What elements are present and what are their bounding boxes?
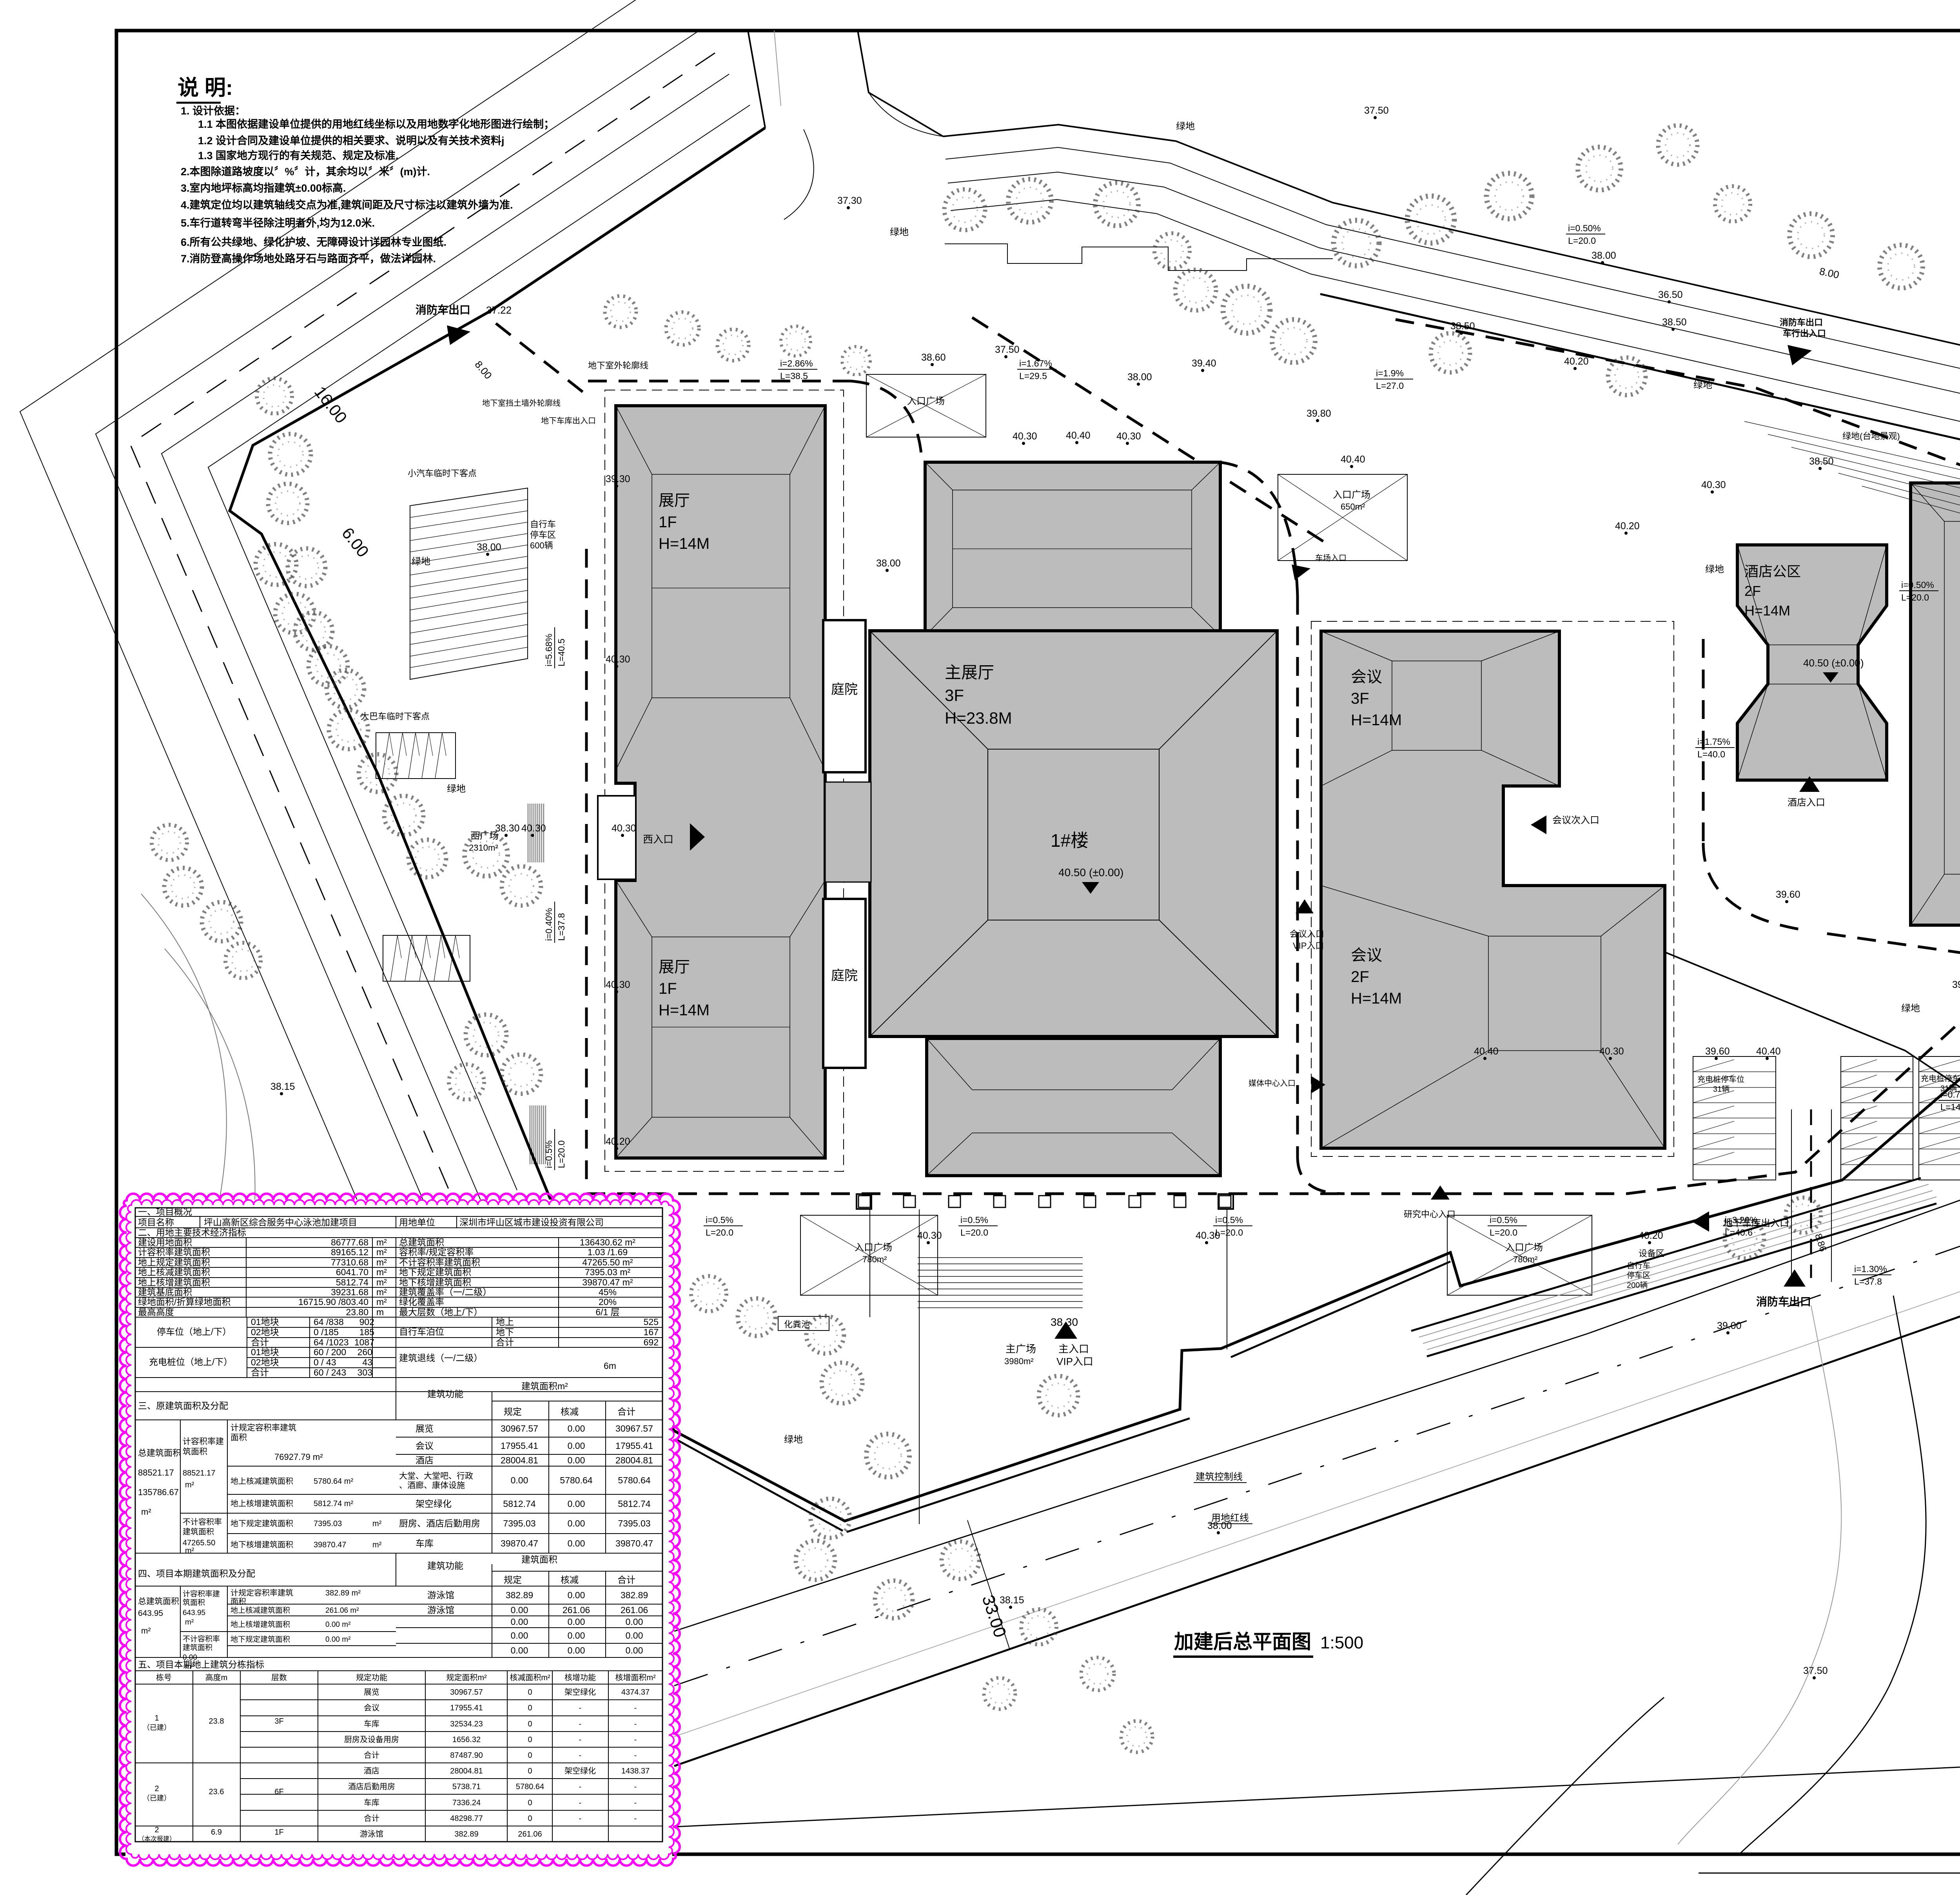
svg-text:3F: 3F [1351,690,1369,707]
svg-text:40.30: 40.30 [1599,1046,1624,1057]
svg-text:用地单位: 用地单位 [399,1217,435,1227]
svg-text:H=14M: H=14M [1351,990,1402,1007]
svg-text:-: - [579,1704,582,1712]
svg-text:5780.64: 5780.64 [516,1782,544,1791]
svg-text:m²: m² [376,1297,387,1307]
svg-text:合计: 合计 [364,1751,379,1760]
svg-text:-: - [634,1735,637,1744]
svg-text:2310m²: 2310m² [469,843,498,853]
svg-text:6041.70: 6041.70 [336,1267,368,1277]
svg-text:L=40.0: L=40.0 [1697,749,1725,759]
svg-text:地上: 地上 [496,1317,514,1327]
svg-text:不计容积率: 不计容积率 [183,1635,220,1643]
svg-text:建筑覆盖率（一/二级）: 建筑覆盖率（一/二级） [399,1287,492,1297]
svg-text:37.50: 37.50 [1803,1665,1828,1676]
svg-text:1: 1 [154,1714,159,1723]
svg-text:车行出入口: 车行出入口 [1783,329,1826,338]
svg-text:1438.37: 1438.37 [621,1767,650,1775]
svg-text:-: - [579,1782,582,1791]
svg-text:31辆: 31辆 [1713,1085,1730,1094]
svg-text:40.30: 40.30 [521,823,546,834]
svg-text:m²: m² [376,1237,387,1247]
svg-text:酒店: 酒店 [416,1455,434,1465]
svg-text:0.00: 0.00 [568,1518,585,1528]
svg-text:i=0.5%: i=0.5% [706,1215,733,1225]
svg-text:大巴车临时下客点: 大巴车临时下客点 [361,712,430,721]
svg-text:1.2 设计合同及建设单位提供的相关要求、说明以及有关技术: 1.2 设计合同及建设单位提供的相关要求、说明以及有关技术资料j [198,134,505,147]
svg-text:4374.37: 4374.37 [621,1688,650,1697]
svg-text:5780.64 m²: 5780.64 m² [314,1477,354,1486]
svg-text:2F: 2F [1351,968,1369,986]
svg-text:酒店后勤用房: 酒店后勤用房 [348,1782,395,1791]
svg-text:37.30: 37.30 [837,195,862,206]
svg-text:（本次报建）: （本次报建） [138,1835,176,1842]
svg-text:i=0.40%: i=0.40% [544,908,554,941]
svg-text:入口广场: 入口广场 [907,396,945,407]
svg-text:6/1 层: 6/1 层 [595,1307,619,1317]
svg-text:H=14M: H=14M [659,535,710,552]
svg-text:40.20: 40.20 [1615,521,1640,532]
svg-text:185: 185 [359,1327,374,1337]
svg-text:38.15: 38.15 [270,1081,295,1092]
svg-text:i=2.86%: i=2.86% [780,358,813,368]
svg-text:1.03 /1.69: 1.03 /1.69 [588,1247,628,1257]
svg-text:停车区: 停车区 [1627,1271,1650,1280]
svg-text:38.50: 38.50 [1662,317,1687,328]
svg-text:0.00: 0.00 [568,1617,585,1627]
svg-text:绿地: 绿地 [1705,564,1724,575]
svg-text:L=40.6: L=40.6 [1725,1227,1753,1238]
svg-text:合计: 合计 [251,1337,269,1347]
svg-text:i=0.50%: i=0.50% [1901,580,1934,590]
svg-text:m²: m² [185,1618,194,1626]
svg-text:i=0.7%: i=0.7% [1940,1089,1960,1100]
svg-text:合计: 合计 [251,1367,269,1378]
svg-text:1.3 国家地方现行的有关规范、规定及标准.: 1.3 国家地方现行的有关规范、规定及标准. [198,149,399,162]
svg-text:不计容积率建筑面积: 不计容积率建筑面积 [399,1257,480,1267]
svg-text:0.00: 0.00 [568,1455,585,1465]
svg-text:-: - [579,1814,582,1823]
svg-text:3.室内地坪标高均指建筑±0.00标高.: 3.室内地坪标高均指建筑±0.00标高. [181,182,346,194]
svg-text:0: 0 [528,1799,532,1807]
svg-text:261.06: 261.06 [563,1605,590,1615]
svg-text:m²: m² [372,1541,382,1549]
svg-text:38.00: 38.00 [477,542,501,553]
svg-text:2.本图除道路坡度以〞%〞计，其余均以〞米〞(m)计.: 2.本图除道路坡度以〞%〞计，其余均以〞米〞(m)计. [181,165,430,178]
svg-text:38.15: 38.15 [1000,1595,1024,1606]
svg-text:39870.47: 39870.47 [501,1538,538,1548]
svg-text:主广场: 主广场 [1005,1343,1036,1355]
svg-text:0: 0 [528,1720,532,1728]
svg-text:最大层数（地上/下）: 最大层数（地上/下） [399,1307,483,1317]
svg-text:车场入口: 车场入口 [1315,554,1347,563]
svg-text:地下规定建筑面积: 地下规定建筑面积 [230,1519,293,1528]
svg-text:i=1.67%: i=1.67% [1019,358,1052,368]
svg-text:-: - [579,1735,582,1744]
svg-text:382.89 m²: 382.89 m² [325,1589,361,1597]
svg-text:地下规定建筑面积: 地下规定建筑面积 [399,1267,471,1277]
svg-text:38.30: 38.30 [1051,1316,1078,1328]
svg-text:39.40: 39.40 [1192,358,1216,369]
svg-text:地上核减建筑面积: 地上核减建筑面积 [230,1477,293,1486]
svg-text:酒店: 酒店 [364,1766,379,1775]
svg-text:i=1.9%: i=1.9% [1376,368,1404,378]
svg-text:建筑面积: 建筑面积 [521,1554,557,1565]
svg-text:计容积率建: 计容积率建 [183,1590,220,1598]
svg-text:23.8: 23.8 [209,1717,224,1726]
svg-text:39870.47: 39870.47 [314,1541,346,1549]
svg-text:37.50: 37.50 [1364,105,1389,116]
svg-text:VIP入口: VIP入口 [1293,941,1324,951]
svg-text:0: 0 [528,1688,532,1697]
svg-text:绿化覆盖率: 绿化覆盖率 [399,1297,444,1307]
svg-text:大堂、大堂吧、行政: 大堂、大堂吧、行政 [399,1472,473,1481]
svg-text:三、原建筑面积及分配: 三、原建筑面积及分配 [138,1401,228,1411]
svg-text:入口广场: 入口广场 [1333,490,1370,500]
svg-text:200辆: 200辆 [1627,1281,1648,1290]
svg-text:建筑面积m²: 建筑面积m² [521,1381,568,1391]
svg-text:一、项目概况: 一、项目概况 [138,1207,192,1217]
svg-text:40.40: 40.40 [1474,1046,1499,1057]
svg-text:382.89: 382.89 [454,1830,478,1839]
svg-text:77310.68: 77310.68 [331,1257,368,1267]
svg-text:20%: 20% [599,1297,617,1307]
svg-text:合计: 合计 [617,1407,635,1417]
svg-text:-: - [634,1704,637,1712]
svg-text:H=23.8M: H=23.8M [945,709,1012,727]
svg-text:76927.79 m²: 76927.79 m² [274,1452,323,1462]
svg-text:会议: 会议 [1351,668,1382,686]
svg-text:01地块: 01地块 [251,1317,279,1327]
svg-text:L=40.5: L=40.5 [556,639,566,666]
svg-text:39.30: 39.30 [606,474,630,485]
svg-text:建筑功能: 建筑功能 [427,1389,463,1399]
svg-text:-: - [579,1751,582,1760]
svg-text:0: 0 [528,1767,532,1775]
svg-text:261.06: 261.06 [621,1605,648,1615]
svg-text:m²: m² [376,1257,387,1267]
svg-text:、酒廊、康体设施: 、酒廊、康体设施 [399,1481,465,1490]
svg-text:1. 设计依据：: 1. 设计依据： [181,105,245,117]
svg-text:600辆: 600辆 [530,541,553,550]
svg-text:38.00: 38.00 [1592,250,1616,261]
svg-text:23.80: 23.80 [346,1307,368,1317]
svg-text:38.00: 38.00 [876,558,901,569]
svg-text:0.00: 0.00 [568,1590,585,1600]
svg-text:层数: 层数 [271,1673,287,1682]
svg-text:0.00: 0.00 [568,1441,585,1451]
svg-text:40.40: 40.40 [1756,1046,1781,1057]
svg-text:167: 167 [644,1327,659,1337]
svg-text:39231.68: 39231.68 [331,1287,368,1297]
svg-text:37.22: 37.22 [486,304,512,316]
svg-text:780m²: 780m² [862,1254,887,1264]
svg-text:1F: 1F [274,1828,283,1837]
svg-text:m²: m² [185,1481,194,1489]
svg-text:0.00: 0.00 [568,1630,585,1641]
svg-text:i=0.5%: i=0.5% [960,1215,988,1225]
svg-text:38.00: 38.00 [1127,372,1152,383]
svg-text:5.车行道转弯半径除注明者外,均为12.0米.: 5.车行道转弯半径除注明者外,均为12.0米. [181,217,375,229]
svg-text:30967.57: 30967.57 [615,1423,653,1434]
svg-text:L=20.0: L=20.0 [1215,1227,1243,1238]
svg-text:i=0.5%: i=0.5% [544,1140,554,1168]
svg-text:充电桩停车位: 充电桩停车位 [1697,1075,1744,1084]
svg-text:0 /185: 0 /185 [314,1327,339,1337]
svg-text:充电桩停车位: 充电桩停车位 [1921,1074,1960,1083]
svg-text:382.89: 382.89 [621,1590,648,1600]
svg-text:0.00 m²: 0.00 m² [325,1635,350,1644]
svg-text:5780.64: 5780.64 [560,1475,592,1485]
svg-text:261.06 m²: 261.06 m² [325,1606,359,1615]
svg-text:7395.03 m²: 7395.03 m² [585,1267,631,1277]
svg-text:87487.90: 87487.90 [450,1751,483,1760]
svg-text:展览: 展览 [364,1688,379,1697]
svg-text:3F: 3F [274,1717,283,1726]
svg-text:6.所有公共绿地、绿化护坡、无障碍设计详园林专业图纸.: 6.所有公共绿地、绿化护坡、无障碍设计详园林专业图纸. [181,236,446,248]
svg-text:m²: m² [185,1546,194,1555]
svg-text:38.50: 38.50 [1809,456,1834,467]
svg-text:0.00: 0.00 [626,1645,643,1655]
svg-text:游泳馆: 游泳馆 [360,1830,383,1839]
svg-text:L=20.0: L=20.0 [706,1227,733,1238]
svg-text:86777.68: 86777.68 [331,1237,368,1247]
svg-text:0.00: 0.00 [511,1605,528,1615]
svg-text:32534.23: 32534.23 [450,1720,483,1728]
svg-text:地下核增建筑面积: 地下核增建筑面积 [399,1277,471,1287]
svg-text:40.20: 40.20 [606,1136,630,1147]
svg-text:L=20.0: L=20.0 [960,1227,988,1238]
svg-text:643.95: 643.95 [138,1609,163,1618]
svg-text:停车区: 停车区 [530,530,556,540]
svg-text:m²: m² [141,1626,151,1635]
svg-text:40.20: 40.20 [1564,356,1589,367]
svg-text:17955.41: 17955.41 [501,1441,538,1451]
svg-text:0: 0 [528,1751,532,1760]
svg-text:64 /1023: 64 /1023 [314,1337,349,1347]
svg-text:643.95: 643.95 [183,1609,205,1617]
svg-text:不计容积率: 不计容积率 [183,1517,222,1527]
svg-text:64 /838: 64 /838 [314,1317,344,1327]
svg-text:0.00: 0.00 [511,1630,528,1641]
svg-text:绿地: 绿地 [1901,1003,1920,1014]
svg-text:展厅: 展厅 [659,492,690,509]
svg-text:0.00: 0.00 [568,1645,585,1655]
svg-text:5738.71: 5738.71 [452,1782,481,1791]
svg-text:135786.67: 135786.67 [138,1487,179,1497]
svg-text:酒店公区: 酒店公区 [1744,563,1801,579]
svg-text:i=1.75%: i=1.75% [1697,737,1730,747]
svg-text:48298.77: 48298.77 [450,1814,483,1823]
svg-text:筑面积: 筑面积 [183,1598,205,1607]
svg-text:40.30: 40.30 [606,654,630,665]
svg-text:合计: 合计 [364,1814,379,1823]
svg-text:停车位（地上/下）: 停车位（地上/下） [157,1327,231,1337]
svg-text:-: - [579,1799,582,1807]
svg-text:建筑控制线: 建筑控制线 [1196,1472,1243,1482]
svg-text:02地块: 02地块 [251,1357,279,1367]
svg-text:39.80: 39.80 [1307,408,1331,419]
svg-text:5780.64: 5780.64 [618,1475,650,1485]
svg-text:2: 2 [154,1826,159,1834]
svg-text:39.60: 39.60 [1705,1046,1730,1057]
svg-text:规定: 规定 [504,1575,522,1585]
svg-text:4.建筑定位均以建筑轴线交点为准,建筑间距及尺寸标注以建筑外: 4.建筑定位均以建筑轴线交点为准,建筑间距及尺寸标注以建筑外墙为准. [181,199,513,211]
svg-text:高度m: 高度m [205,1673,228,1682]
svg-text:0.00: 0.00 [511,1475,528,1485]
svg-text:38.60: 38.60 [921,352,946,363]
svg-text:自行车: 自行车 [530,519,556,529]
svg-text:-: - [634,1799,637,1807]
svg-text:总建筑面积: 总建筑面积 [138,1597,179,1606]
svg-text:17955.41: 17955.41 [450,1704,483,1712]
svg-text:39870.47: 39870.47 [615,1538,653,1548]
svg-text:总建筑面积: 总建筑面积 [399,1237,444,1247]
svg-text:1F: 1F [659,514,677,531]
svg-text:厨房及设备用房: 厨房及设备用房 [344,1735,399,1744]
svg-text:地下核增建筑面积: 地下核增建筑面积 [230,1540,293,1549]
svg-text:H=14M: H=14M [1744,603,1790,619]
svg-text:40.30: 40.30 [612,823,636,834]
svg-text:37.50: 37.50 [995,344,1020,355]
svg-text:计规定容积率建筑: 计规定容积率建筑 [230,1588,293,1597]
svg-text:m²: m² [376,1287,387,1297]
svg-text:研究中心入口: 研究中心入口 [1404,1209,1455,1219]
svg-text:厨房、酒店后勤用房: 厨房、酒店后勤用房 [399,1518,480,1528]
svg-text:建筑基底面积: 建筑基底面积 [138,1287,192,1297]
svg-text:五、项目本期地上建筑分栋指标: 五、项目本期地上建筑分栋指标 [138,1659,264,1670]
svg-text:1087: 1087 [354,1337,374,1347]
svg-text:60 / 243: 60 / 243 [314,1367,346,1378]
svg-text:39.60: 39.60 [1776,889,1800,900]
svg-text:游泳馆: 游泳馆 [427,1605,454,1615]
svg-text:自行车: 自行车 [1627,1261,1650,1270]
svg-text:5812.74: 5812.74 [618,1499,650,1509]
svg-text:1.1 本图依据建设单位提供的用地红线坐标以及用地数字化地: 1.1 本图依据建设单位提供的用地红线坐标以及用地数字化地形图进行绘制； [198,118,554,130]
svg-text:绿地: 绿地 [412,556,430,567]
svg-text:17955.41: 17955.41 [615,1441,653,1451]
svg-text:m²: m² [376,1277,387,1287]
svg-text:0.00: 0.00 [568,1538,585,1548]
svg-text:绿地(台地景观): 绿地(台地景观) [1842,431,1900,441]
svg-text:-: - [634,1720,637,1728]
svg-text:庭院: 庭院 [831,682,858,697]
svg-text:西入口: 西入口 [643,833,673,845]
svg-text:地下: 地下 [496,1327,514,1337]
svg-text:充电桩位（地上/下）: 充电桩位（地上/下） [149,1357,232,1367]
svg-text:计容积率建筑面积: 计容积率建筑面积 [138,1247,210,1257]
svg-text:36.50: 36.50 [1658,289,1683,300]
svg-text:02地块: 02地块 [251,1327,279,1337]
svg-text:136430.62 m²: 136430.62 m² [580,1237,635,1247]
svg-text:游泳馆: 游泳馆 [427,1590,454,1600]
svg-text:0 / 43: 0 / 43 [314,1357,336,1367]
svg-text:（已建）: （已建） [143,1724,171,1732]
svg-text:30967.57: 30967.57 [450,1688,483,1697]
svg-text:-: - [634,1751,637,1760]
svg-text:3980m²: 3980m² [1004,1356,1034,1366]
svg-text:0: 0 [528,1735,532,1744]
svg-text:43: 43 [362,1357,372,1367]
svg-text:60 / 200: 60 / 200 [314,1347,346,1357]
svg-text:面积: 面积 [230,1433,247,1442]
svg-text:核增面积m²: 核增面积m² [615,1673,656,1682]
svg-text:0: 0 [528,1814,532,1823]
svg-text:6.9: 6.9 [211,1828,222,1837]
svg-text:40.30: 40.30 [1116,431,1141,442]
svg-text:车库: 车库 [364,1719,379,1728]
svg-text:筑面积: 筑面积 [183,1447,207,1456]
svg-text:6F: 6F [274,1788,283,1796]
svg-text:40.30: 40.30 [1013,431,1037,442]
svg-text:庭院: 庭院 [831,968,858,983]
svg-text:2: 2 [154,1784,159,1793]
svg-text:m²: m² [141,1507,151,1517]
svg-text:5812.74: 5812.74 [503,1499,535,1509]
svg-text:绿地: 绿地 [890,227,909,238]
svg-text:0.00: 0.00 [626,1617,643,1627]
svg-text:媒体中心入口: 媒体中心入口 [1249,1079,1296,1088]
svg-text:L=38.5: L=38.5 [780,371,808,381]
svg-text:89165.12: 89165.12 [331,1247,368,1257]
svg-text:说 明:: 说 明: [178,76,233,100]
svg-text:绿地: 绿地 [1176,121,1195,132]
svg-text:加建后总平面图: 加建后总平面图 [1174,1631,1311,1653]
svg-text:规定功能: 规定功能 [356,1673,387,1682]
svg-text:会议入口: 会议入口 [1290,929,1324,939]
svg-text:消防车出口: 消防车出口 [416,303,470,316]
svg-text:7336.24: 7336.24 [452,1799,481,1807]
svg-text:40.30: 40.30 [917,1230,942,1241]
svg-text:建筑面积: 建筑面积 [183,1643,212,1652]
svg-text:39.00: 39.00 [1717,1320,1742,1331]
svg-text:酒店入口: 酒店入口 [1788,797,1825,808]
svg-text:L=27.0: L=27.0 [1376,381,1404,391]
svg-text:绿地: 绿地 [784,1434,803,1445]
svg-text:0.00: 0.00 [511,1617,528,1627]
svg-text:建设用地面积: 建设用地面积 [138,1237,192,1247]
svg-text:i=1.30%: i=1.30% [1854,1264,1887,1274]
svg-text:入口广场: 入口广场 [1505,1242,1543,1253]
svg-text:40.20: 40.20 [1639,1230,1663,1241]
svg-text:四、项目本期建筑面积及分配: 四、项目本期建筑面积及分配 [138,1568,255,1579]
svg-text:7395.03: 7395.03 [503,1518,535,1528]
svg-text:L=37.8: L=37.8 [1854,1276,1882,1287]
svg-text:深圳市坪山区城市建设投资有限公司: 深圳市坪山区城市建设投资有限公司 [459,1217,604,1227]
svg-text:88521.17: 88521.17 [183,1469,215,1478]
svg-text:L=14.4: L=14.4 [1940,1102,1960,1112]
svg-text:38.30: 38.30 [495,823,520,834]
svg-text:栋号: 栋号 [156,1673,172,1682]
svg-text:面积: 面积 [230,1597,246,1606]
svg-text:总建筑面积: 总建筑面积 [138,1448,181,1458]
svg-text:01地块: 01地块 [251,1347,279,1357]
svg-text:核减面积m²: 核减面积m² [510,1673,550,1682]
svg-text:780m²: 780m² [1513,1254,1537,1264]
svg-text:（已建）: （已建） [143,1794,171,1802]
svg-text:计规定容积率建筑: 计规定容积率建筑 [230,1423,296,1432]
svg-text:小汽车临时下客点: 小汽车临时下客点 [408,468,477,478]
svg-text:7.消防登高操作场地处路牙石与路面齐平，做法详园林.: 7.消防登高操作场地处路牙石与路面齐平，做法详园林. [181,252,436,265]
svg-text:39.60: 39.60 [1952,979,1960,990]
svg-text:303: 303 [358,1367,372,1378]
svg-text:5812.74 m²: 5812.74 m² [314,1499,354,1508]
svg-text:692: 692 [644,1337,659,1347]
svg-text:1F: 1F [659,980,677,997]
svg-text:展览: 展览 [416,1423,434,1434]
svg-text:容积率/规定容积率: 容积率/规定容积率 [399,1247,474,1257]
svg-text:H=14M: H=14M [1351,712,1402,729]
